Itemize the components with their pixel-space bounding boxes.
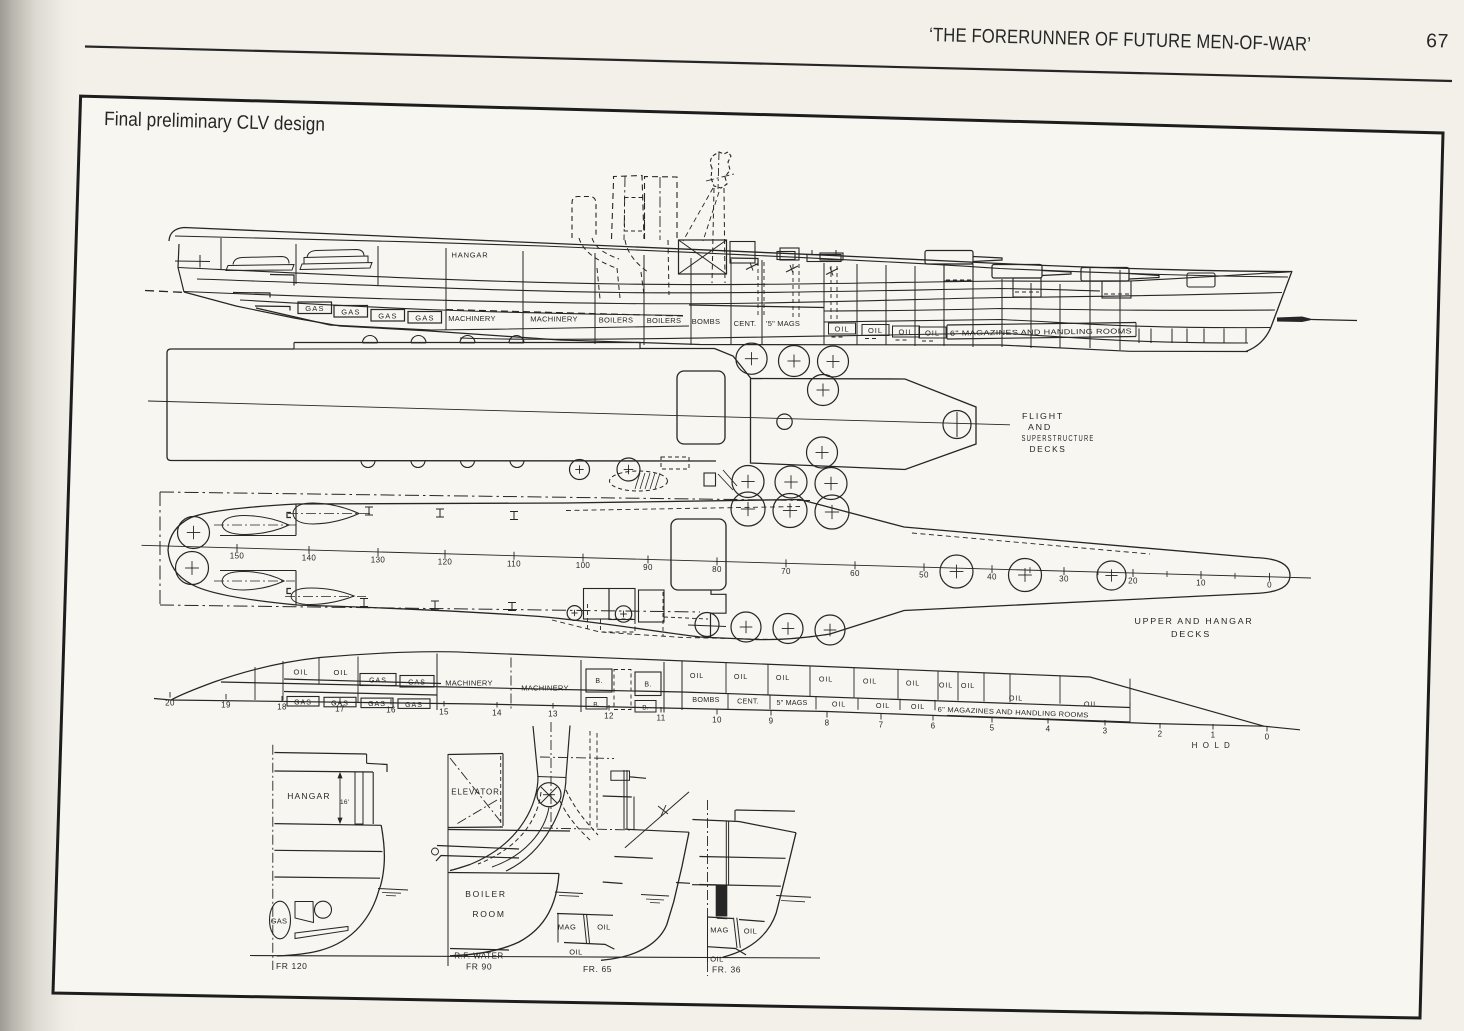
svg-text:FR 90: FR 90 (466, 962, 492, 972)
svg-text:14: 14 (492, 709, 502, 718)
svg-text:OIL: OIL (832, 700, 846, 709)
svg-text:DECKS: DECKS (1171, 630, 1211, 639)
svg-text:16: 16 (386, 706, 396, 715)
svg-text:1: 1 (1211, 731, 1216, 740)
svg-text:BOMBS: BOMBS (692, 317, 721, 326)
svg-text:15: 15 (439, 708, 449, 717)
svg-text:GAS: GAS (294, 700, 312, 707)
svg-text:FR. 36: FR. 36 (712, 965, 741, 975)
svg-text:7: 7 (879, 721, 884, 730)
svg-text:30: 30 (1059, 575, 1069, 584)
svg-text:UPPER AND HANGAR: UPPER AND HANGAR (1135, 617, 1254, 626)
svg-text:140: 140 (302, 554, 317, 563)
svg-text:GAS: GAS (408, 680, 426, 687)
svg-text:OIL: OIL (906, 679, 920, 688)
svg-text:FLIGHT: FLIGHT (1022, 412, 1064, 421)
svg-text:150: 150 (230, 552, 245, 561)
svg-text:FR. 65: FR. 65 (583, 964, 612, 974)
svg-text:R.F. WATER: R.F. WATER (454, 952, 503, 961)
svg-text:100: 100 (576, 561, 591, 570)
svg-text:OIL: OIL (876, 701, 890, 710)
svg-text:19: 19 (221, 701, 231, 710)
svg-text:70: 70 (781, 567, 791, 576)
svg-text:3: 3 (1103, 727, 1108, 736)
svg-text:GAS: GAS (368, 701, 386, 708)
svg-text:CENT.: CENT. (734, 319, 757, 328)
svg-text:8: 8 (825, 719, 830, 728)
svg-text:OIL: OIL (898, 328, 913, 337)
svg-text:OIL: OIL (734, 672, 748, 681)
svg-text:110: 110 (507, 559, 521, 568)
svg-text:40: 40 (987, 573, 997, 582)
svg-text:90: 90 (643, 563, 653, 572)
svg-text:OIL: OIL (333, 668, 348, 677)
svg-text:OIL: OIL (939, 681, 953, 690)
svg-text:ELEVATOR: ELEVATOR (451, 788, 500, 797)
svg-text:GAS: GAS (341, 308, 360, 317)
svg-text:6: 6 (931, 722, 936, 731)
svg-text:DECKS: DECKS (1030, 445, 1067, 454)
svg-text:MAG: MAG (710, 926, 729, 935)
svg-text:OIL: OIL (819, 675, 833, 684)
svg-text:130: 130 (371, 555, 386, 564)
svg-text:GAS: GAS (378, 312, 397, 321)
svg-text:17: 17 (335, 705, 345, 714)
svg-text:OIL: OIL (597, 923, 611, 932)
svg-text:BOILER: BOILER (465, 889, 506, 899)
svg-text:5" MAGS: 5" MAGS (776, 698, 807, 707)
svg-text:HANGAR: HANGAR (452, 251, 489, 260)
svg-text:MACHINERY: MACHINERY (445, 679, 493, 688)
svg-text:120: 120 (438, 557, 453, 566)
svg-text:0: 0 (1265, 733, 1270, 742)
svg-text:CENT.: CENT. (737, 697, 759, 706)
svg-text:12: 12 (604, 712, 614, 721)
svg-text:B.: B. (593, 702, 600, 709)
svg-text:OIL: OIL (868, 326, 883, 335)
svg-text:OIL: OIL (834, 325, 849, 334)
svg-text:’5" MAGS: ’5" MAGS (766, 319, 800, 328)
svg-text:OIL: OIL (911, 702, 925, 711)
svg-text:60: 60 (850, 569, 860, 578)
svg-text:MACHINERY: MACHINERY (521, 684, 569, 693)
svg-text:OIL: OIL (863, 677, 877, 686)
svg-text:OIL: OIL (293, 668, 308, 677)
svg-text:ROOM: ROOM (472, 909, 505, 919)
svg-text:GAS: GAS (405, 702, 423, 709)
svg-text:2: 2 (1158, 730, 1163, 739)
svg-text:OIL: OIL (776, 673, 790, 682)
svg-text:16': 16' (340, 799, 349, 806)
svg-text:20: 20 (165, 699, 175, 708)
svg-text:SUPERSTRUCTURE: SUPERSTRUCTURE (1022, 434, 1095, 443)
svg-text:FR 120: FR 120 (276, 961, 307, 971)
svg-text:OIL: OIL (925, 329, 940, 338)
svg-text:B.: B. (644, 682, 651, 689)
svg-text:B.: B. (642, 705, 649, 712)
svg-text:20: 20 (1128, 577, 1138, 586)
svg-text:18: 18 (277, 703, 287, 712)
svg-text:10: 10 (712, 716, 722, 725)
svg-text:4: 4 (1046, 725, 1051, 734)
svg-text:0: 0 (1267, 580, 1272, 589)
svg-text:GAS: GAS (271, 917, 287, 926)
svg-text:BOILERS: BOILERS (599, 316, 634, 325)
svg-text:9: 9 (769, 717, 774, 726)
svg-text:H O L D: H O L D (1192, 741, 1232, 750)
svg-text:MACHINERY: MACHINERY (530, 315, 578, 324)
svg-text:5: 5 (990, 724, 995, 733)
svg-text:MAG: MAG (558, 923, 577, 932)
svg-text:BOMBS: BOMBS (692, 695, 719, 704)
svg-text:B.: B. (595, 678, 602, 685)
svg-text:11: 11 (656, 714, 665, 723)
svg-text:GAS: GAS (305, 304, 324, 313)
svg-text:AND: AND (1028, 423, 1052, 432)
svg-text:OIL: OIL (1084, 700, 1098, 709)
svg-text:HANGAR: HANGAR (287, 791, 331, 801)
svg-text:13: 13 (548, 710, 558, 719)
svg-text:OIL: OIL (569, 948, 583, 957)
svg-text:GAS: GAS (415, 314, 434, 323)
svg-text:OIL: OIL (710, 955, 724, 964)
svg-text:MACHINERY: MACHINERY (448, 314, 496, 323)
svg-text:OIL: OIL (744, 927, 758, 936)
svg-text:67: 67 (1426, 30, 1449, 53)
svg-text:50: 50 (919, 571, 929, 580)
svg-text:80: 80 (712, 565, 722, 574)
svg-text:OIL: OIL (690, 671, 704, 680)
svg-text:OIL: OIL (961, 681, 975, 690)
svg-text:10: 10 (1196, 578, 1206, 587)
svg-text:GAS: GAS (369, 678, 387, 685)
svg-text:OIL: OIL (1009, 694, 1023, 703)
svg-text:BOILERS: BOILERS (647, 316, 682, 325)
